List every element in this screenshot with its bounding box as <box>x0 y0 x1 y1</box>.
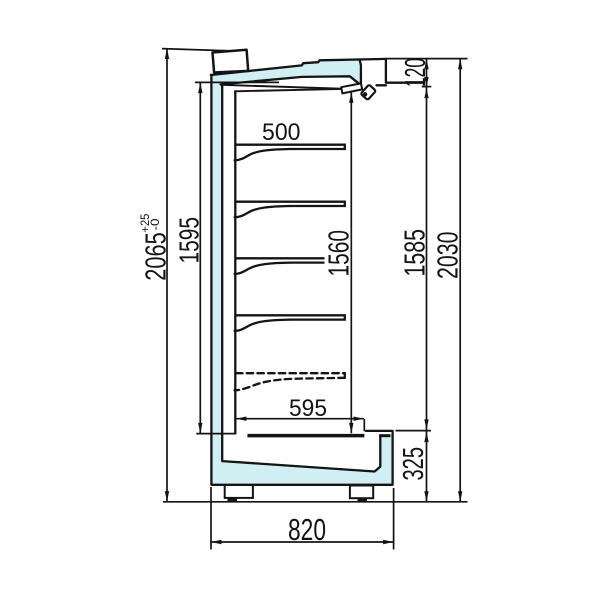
svg-text:1560: 1560 <box>324 230 356 277</box>
svg-text:1585: 1585 <box>400 229 432 277</box>
svg-text:820: 820 <box>288 512 326 547</box>
svg-text:325: 325 <box>398 447 430 481</box>
svg-text:500: 500 <box>262 119 301 146</box>
svg-text:-0: -0 <box>148 218 162 230</box>
svg-text:2030: 2030 <box>433 232 465 280</box>
svg-text:2065: 2065 <box>141 232 173 281</box>
svg-text:595: 595 <box>289 395 327 422</box>
svg-text:1595: 1595 <box>174 217 205 264</box>
svg-text:120: 120 <box>400 58 432 87</box>
